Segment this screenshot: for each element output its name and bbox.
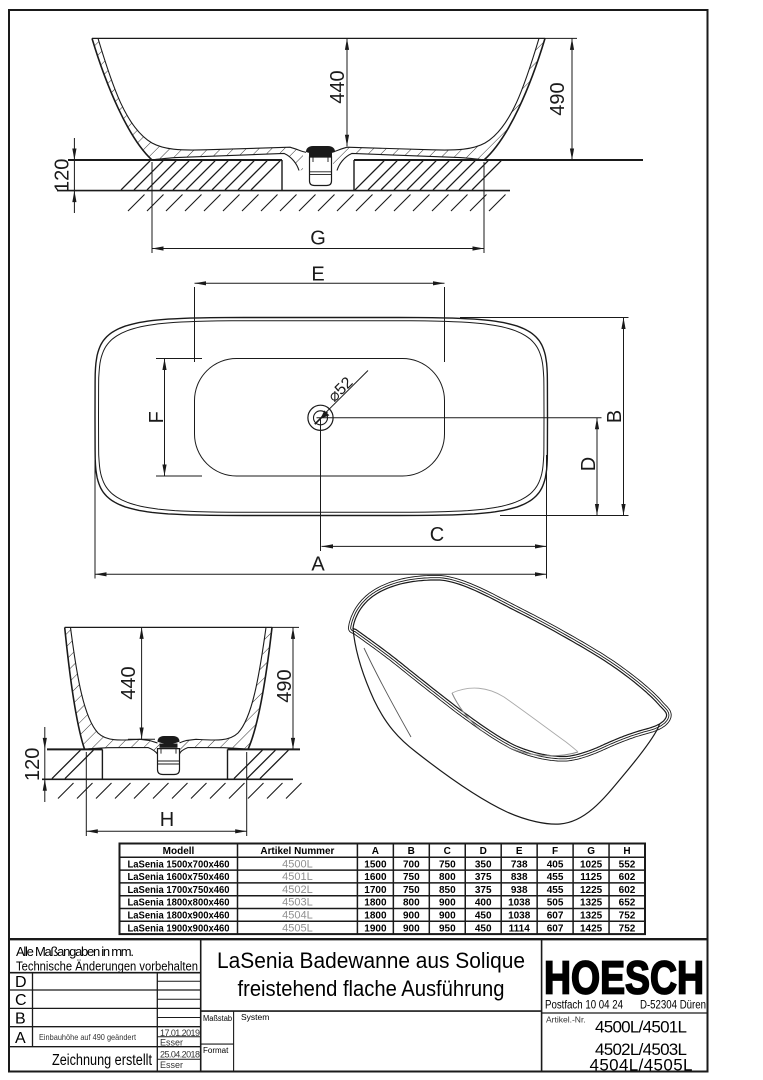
svg-text:C: C — [444, 846, 451, 857]
svg-text:D-52304 Düren: D-52304 Düren — [640, 998, 706, 1012]
svg-text:freistehend flache Ausführung: freistehend flache Ausführung — [238, 976, 505, 1001]
svg-text:900: 900 — [403, 923, 420, 934]
svg-text:752: 752 — [619, 911, 636, 922]
svg-text:900: 900 — [439, 911, 456, 922]
svg-text:375: 375 — [475, 885, 492, 896]
svg-text:1800: 1800 — [364, 898, 387, 909]
svg-text:455: 455 — [547, 872, 564, 883]
svg-text:17.01.2019: 17.01.2019 — [160, 1028, 200, 1038]
svg-text:602: 602 — [619, 872, 636, 883]
svg-text:4502L: 4502L — [282, 884, 313, 896]
svg-text:4500L/4501L: 4500L/4501L — [595, 1018, 687, 1037]
svg-text:4504L: 4504L — [282, 910, 313, 922]
svg-text:652: 652 — [619, 898, 636, 909]
svg-text:552: 552 — [619, 859, 636, 870]
svg-text:1600: 1600 — [364, 872, 387, 883]
svg-text:LaSenia 1700x750x460: LaSenia 1700x750x460 — [128, 884, 230, 896]
svg-text:LaSenia 1800x800x460: LaSenia 1800x800x460 — [128, 897, 230, 909]
svg-text:938: 938 — [511, 885, 528, 896]
svg-text:A: A — [15, 1030, 26, 1047]
svg-text:A: A — [311, 554, 325, 576]
svg-text:1800: 1800 — [364, 911, 387, 922]
svg-text:738: 738 — [511, 859, 528, 870]
svg-text:Postfach 10 04 24: Postfach 10 04 24 — [545, 998, 623, 1012]
svg-text:4503L: 4503L — [282, 897, 313, 909]
svg-text:D: D — [578, 457, 600, 471]
svg-text:LaSenia Badewanne aus Solique: LaSenia Badewanne aus Solique — [217, 948, 525, 973]
svg-text:900: 900 — [403, 911, 420, 922]
svg-text:B: B — [15, 1011, 26, 1028]
svg-text:505: 505 — [547, 898, 564, 909]
svg-text:1900: 1900 — [364, 923, 387, 934]
svg-text:1125: 1125 — [580, 872, 602, 883]
svg-text:D: D — [15, 974, 27, 991]
svg-text:1038: 1038 — [508, 911, 531, 922]
svg-text:1025: 1025 — [580, 859, 603, 870]
svg-text:1325: 1325 — [580, 911, 603, 922]
svg-text:800: 800 — [439, 872, 456, 883]
svg-text:440: 440 — [118, 666, 140, 699]
svg-text:G: G — [587, 846, 595, 857]
svg-text:F: F — [146, 411, 168, 423]
svg-text:1325: 1325 — [580, 898, 603, 909]
svg-text:B: B — [604, 410, 626, 423]
svg-text:602: 602 — [619, 885, 636, 896]
svg-text:LaSenia 1500x700x460: LaSenia 1500x700x460 — [128, 858, 230, 870]
svg-text:455: 455 — [547, 885, 564, 896]
svg-text:A: A — [372, 846, 379, 857]
svg-text:120: 120 — [52, 159, 74, 192]
svg-text:120: 120 — [22, 748, 44, 781]
svg-text:750: 750 — [403, 885, 420, 896]
svg-text:375: 375 — [475, 872, 492, 883]
svg-text:1114: 1114 — [509, 923, 531, 934]
svg-text:450: 450 — [475, 923, 492, 934]
svg-text:440: 440 — [327, 70, 349, 103]
svg-text:H: H — [623, 846, 630, 857]
svg-text:607: 607 — [547, 911, 564, 922]
svg-text:LaSenia 1800x900x460: LaSenia 1800x900x460 — [128, 910, 230, 922]
svg-text:E: E — [311, 264, 324, 286]
svg-text:Format: Format — [203, 1046, 229, 1055]
svg-text:1700: 1700 — [364, 885, 387, 896]
svg-text:Technische Änderungen vorbehal: Technische Änderungen vorbehalten — [16, 959, 198, 974]
svg-text:400: 400 — [475, 898, 492, 909]
svg-text:838: 838 — [511, 872, 528, 883]
svg-text:D: D — [480, 846, 487, 857]
svg-text:Artikel Nummer: Artikel Nummer — [260, 846, 334, 857]
svg-text:1038: 1038 — [508, 898, 531, 909]
svg-text:Esser: Esser — [160, 1060, 183, 1070]
svg-text:Modell: Modell — [163, 846, 195, 857]
svg-text:405: 405 — [547, 859, 564, 870]
svg-text:490: 490 — [274, 669, 296, 702]
svg-text:Alle Maßangaben in mm.: Alle Maßangaben in mm. — [16, 944, 134, 959]
svg-text:E: E — [516, 846, 523, 857]
svg-text:Esser: Esser — [160, 1038, 183, 1048]
svg-text:1225: 1225 — [580, 885, 603, 896]
svg-text:4500L: 4500L — [282, 858, 313, 870]
svg-text:1500: 1500 — [364, 859, 387, 870]
svg-text:LaSenia 1600x750x460: LaSenia 1600x750x460 — [128, 871, 230, 883]
svg-text:4505L: 4505L — [282, 922, 313, 934]
svg-text:25.04.2018: 25.04.2018 — [160, 1050, 200, 1060]
svg-text:752: 752 — [619, 923, 636, 934]
svg-text:Zeichnung erstellt: Zeichnung erstellt — [52, 1052, 153, 1069]
svg-text:350: 350 — [475, 859, 492, 870]
svg-text:LaSenia 1900x900x460: LaSenia 1900x900x460 — [128, 922, 230, 934]
svg-text:H: H — [160, 809, 174, 831]
svg-text:4501L: 4501L — [282, 871, 313, 883]
svg-text:System: System — [241, 1012, 269, 1022]
svg-text:800: 800 — [403, 898, 420, 909]
svg-text:F: F — [552, 846, 558, 857]
svg-text:750: 750 — [403, 872, 420, 883]
svg-text:B: B — [408, 846, 415, 857]
svg-text:607: 607 — [547, 923, 564, 934]
svg-text:850: 850 — [439, 885, 456, 896]
svg-text:C: C — [15, 992, 27, 1009]
svg-text:HOESCH: HOESCH — [544, 952, 704, 1004]
svg-text:Maßstab: Maßstab — [203, 1014, 233, 1023]
svg-text:750: 750 — [439, 859, 456, 870]
svg-text:4504L/4505L: 4504L/4505L — [590, 1056, 693, 1075]
svg-text:490: 490 — [547, 82, 569, 115]
svg-text:700: 700 — [403, 859, 420, 870]
svg-text:G: G — [310, 228, 326, 250]
svg-text:Einbauhöhe auf 490 geändert: Einbauhöhe auf 490 geändert — [39, 1032, 137, 1042]
svg-text:950: 950 — [439, 923, 456, 934]
svg-text:900: 900 — [439, 898, 456, 909]
svg-text:C: C — [430, 524, 444, 546]
svg-text:1425: 1425 — [580, 923, 603, 934]
svg-text:Artikel.-Nr.: Artikel.-Nr. — [546, 1015, 586, 1025]
svg-text:450: 450 — [475, 911, 492, 922]
